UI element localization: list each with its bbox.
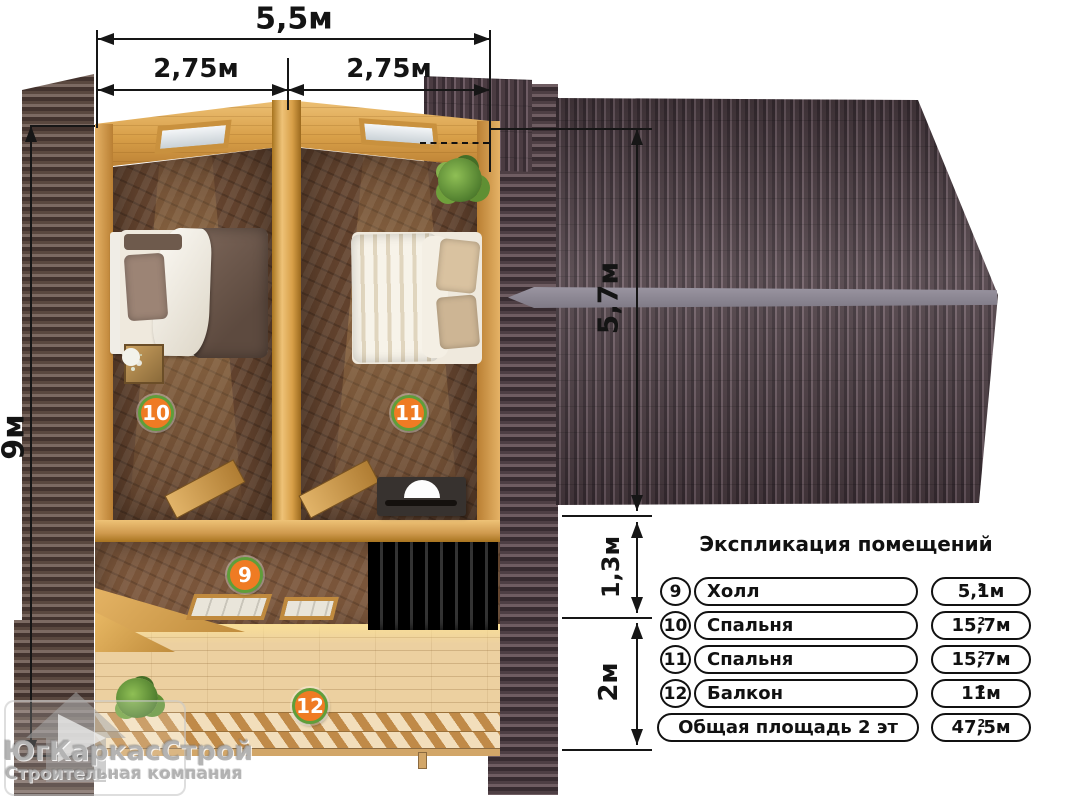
dimension-arrow <box>631 729 643 745</box>
extension-line <box>489 30 491 172</box>
legend-room-name: Спальня <box>694 645 918 674</box>
legend-number-text: 11 <box>664 650 688 670</box>
legend-name-text: Холл <box>707 581 760 602</box>
extension-line <box>562 617 652 619</box>
extension-line <box>30 125 95 127</box>
legend-total-area: 47,5м2 <box>931 713 1031 742</box>
dimension-label-balcony-depth: 2м <box>594 662 624 701</box>
bed-right <box>352 232 482 364</box>
room-badge-label: 9 <box>238 563 252 587</box>
balcony-post <box>418 752 427 769</box>
extension-line <box>562 749 652 751</box>
dimension-label-roof-depth: 5,7м <box>592 262 625 335</box>
bed-left <box>110 228 268 358</box>
room-badge-bedroom-right: 11 <box>391 395 427 431</box>
dimension-arrow <box>631 623 643 639</box>
dimension-arrow <box>288 84 304 96</box>
legend-area-sup: 2 <box>978 717 986 730</box>
desk <box>377 477 466 516</box>
dimension-arrow <box>631 129 643 145</box>
legend-area-sup: 2 <box>978 683 986 696</box>
legend-name-text: Балкон <box>707 683 783 704</box>
extension-line <box>562 515 652 517</box>
room-badge-label: 12 <box>296 694 324 718</box>
legend-name-text: Спальня <box>707 649 793 670</box>
bed-left-pillow <box>124 253 169 322</box>
dimension-label-right-half: 2,75м <box>346 54 431 84</box>
bed-right-pillow-beige-1 <box>435 238 480 294</box>
roof-left-eave-upper <box>22 74 94 622</box>
staircase <box>368 536 498 630</box>
room-badge-hall: 9 <box>227 557 263 593</box>
roof-ridge <box>508 287 997 308</box>
watermark-tagline: Строительная компания <box>5 764 243 784</box>
dimension-label-total-depth: 9м <box>0 414 32 459</box>
legend-number-text: 10 <box>664 616 688 636</box>
floor-hatch-left <box>186 594 272 620</box>
room-badge-label: 10 <box>142 401 170 425</box>
legend-title: Экспликация помещений <box>660 532 1032 556</box>
legend-room-area: 11м2 <box>931 679 1031 708</box>
legend-number-text: 12 <box>664 684 688 704</box>
dimension-label-hall-depth: 1,3м <box>597 536 625 598</box>
extension-line <box>490 128 652 130</box>
dimension-arrow <box>631 522 643 538</box>
dimension-arrow <box>474 33 490 45</box>
plant-bedroom-icon <box>438 158 482 202</box>
dimension-line-roof-depth <box>636 129 638 511</box>
dimension-arrow <box>98 84 114 96</box>
legend-room-name: Спальня <box>694 611 918 640</box>
roof-edge-dashed-line <box>420 142 489 144</box>
loft-edge-band <box>95 520 500 542</box>
legend-room-name: Балкон <box>694 679 918 708</box>
dimension-arrow <box>98 33 114 45</box>
legend-room-area: 15,7м2 <box>931 611 1031 640</box>
legend-room-area: 5,1м2 <box>931 577 1031 606</box>
legend-room-name: Холл <box>694 577 918 606</box>
legend-room-number: 9 <box>660 577 691 606</box>
legend-area-sup: 2 <box>978 581 986 594</box>
dimension-arrow <box>631 495 643 511</box>
floor-hatch-right <box>279 597 339 620</box>
wall-divider <box>272 100 301 542</box>
room-badge-label: 11 <box>395 401 423 425</box>
legend-room-number: 11 <box>660 645 691 674</box>
desk-tray <box>385 500 457 506</box>
dimension-arrow <box>25 126 37 142</box>
legend-room-area: 15,7м2 <box>931 645 1031 674</box>
legend-area-sup: 2 <box>978 649 986 662</box>
legend-area-sup: 2 <box>978 615 986 628</box>
legend-name-text: Спальня <box>707 615 793 636</box>
bed-left-pillow-dark <box>124 234 182 250</box>
bed-right-pillow-beige-2 <box>436 294 480 349</box>
dimension-label-total-width: 5,5м <box>255 2 333 37</box>
legend-number-text: 9 <box>670 582 682 602</box>
legend-room-number: 12 <box>660 679 691 708</box>
dimension-arrow <box>474 84 490 96</box>
dimension-label-left-half: 2,75м <box>153 54 238 84</box>
room-badge-balcony: 12 <box>292 688 328 724</box>
room-badge-bedroom-left: 10 <box>138 395 174 431</box>
dimension-arrow <box>631 597 643 613</box>
floor-plan-scene: 10 11 9 12 5,5м 2,75м 2,75м 9м 5,7м 1,3м… <box>0 0 1067 800</box>
skylight-right <box>359 118 440 150</box>
desk-lamp-icon <box>404 480 440 498</box>
dimension-arrow <box>272 84 288 96</box>
dimension-line-balcony-depth <box>636 623 638 745</box>
watermark-company: ЮгКаркасСтрой <box>3 736 253 767</box>
legend-total-label: Общая площадь 2 эт <box>657 713 919 742</box>
dimension-line-total-width <box>98 38 490 40</box>
flowers-icon <box>122 348 140 366</box>
legend-room-number: 10 <box>660 611 691 640</box>
legend-total-text: Общая площадь 2 эт <box>678 717 898 738</box>
